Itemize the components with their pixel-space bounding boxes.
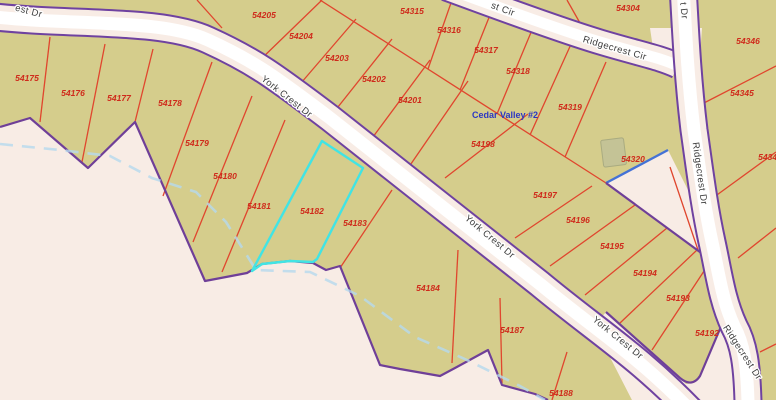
parcel-label-54196[interactable]: 54196 [566,215,590,225]
parcel-label-54320[interactable]: 54320 [621,154,645,164]
parcel-label-54179[interactable]: 54179 [185,138,209,148]
parcel-label-54178[interactable]: 54178 [158,98,182,108]
parcel-label-54346[interactable]: 54346 [736,36,760,46]
parcel-label-54304[interactable]: 54304 [616,3,640,13]
subdivision-label: Cedar Valley #2 [472,110,538,120]
parcel-label-54345[interactable]: 54345 [730,88,754,98]
parcel-label-54175[interactable]: 54175 [15,73,39,83]
parcel-label-54182[interactable]: 54182 [300,206,324,216]
parcel-label-54319[interactable]: 54319 [558,102,582,112]
parcel-label-54203[interactable]: 54203 [325,53,349,63]
map-canvas[interactable]: est DrYork Crest DrYork Crest DrYork Cre… [0,0,776,400]
parcel-label-54180[interactable]: 54180 [213,171,237,181]
parcel-label-54194[interactable]: 54194 [633,268,657,278]
parcel-label-54184[interactable]: 54184 [416,283,440,293]
parcel-label-54316[interactable]: 54316 [437,25,461,35]
parcel-label-54187[interactable]: 54187 [500,325,525,335]
parcel-label-54181[interactable]: 54181 [247,201,271,211]
parcel-label-54204[interactable]: 54204 [289,31,313,41]
parcel-label-54343[interactable]: 54343 [758,152,776,162]
parcel-label-54192[interactable]: 54192 [695,328,719,338]
street-label: t Dr [677,2,690,20]
parcel-label-54318[interactable]: 54318 [506,66,530,76]
parcel-label-54195[interactable]: 54195 [600,241,624,251]
parcel-label-54201[interactable]: 54201 [398,95,422,105]
parcel-label-54193[interactable]: 54193 [666,293,690,303]
parcel-label-54183[interactable]: 54183 [343,218,367,228]
parcel-label-54188[interactable]: 54188 [549,388,573,398]
gis-parcel-map[interactable]: est DrYork Crest DrYork Crest DrYork Cre… [0,0,776,400]
parcel-label-54205[interactable]: 54205 [252,10,276,20]
parcel-label-54177[interactable]: 54177 [107,93,132,103]
parcel-label-54317[interactable]: 54317 [474,45,499,55]
parcel-label-54197[interactable]: 54197 [533,190,558,200]
parcel-label-54198[interactable]: 54198 [471,139,495,149]
parcel-label-54176[interactable]: 54176 [61,88,85,98]
parcel-label-54315[interactable]: 54315 [400,6,424,16]
parcel-label-54202[interactable]: 54202 [362,74,386,84]
